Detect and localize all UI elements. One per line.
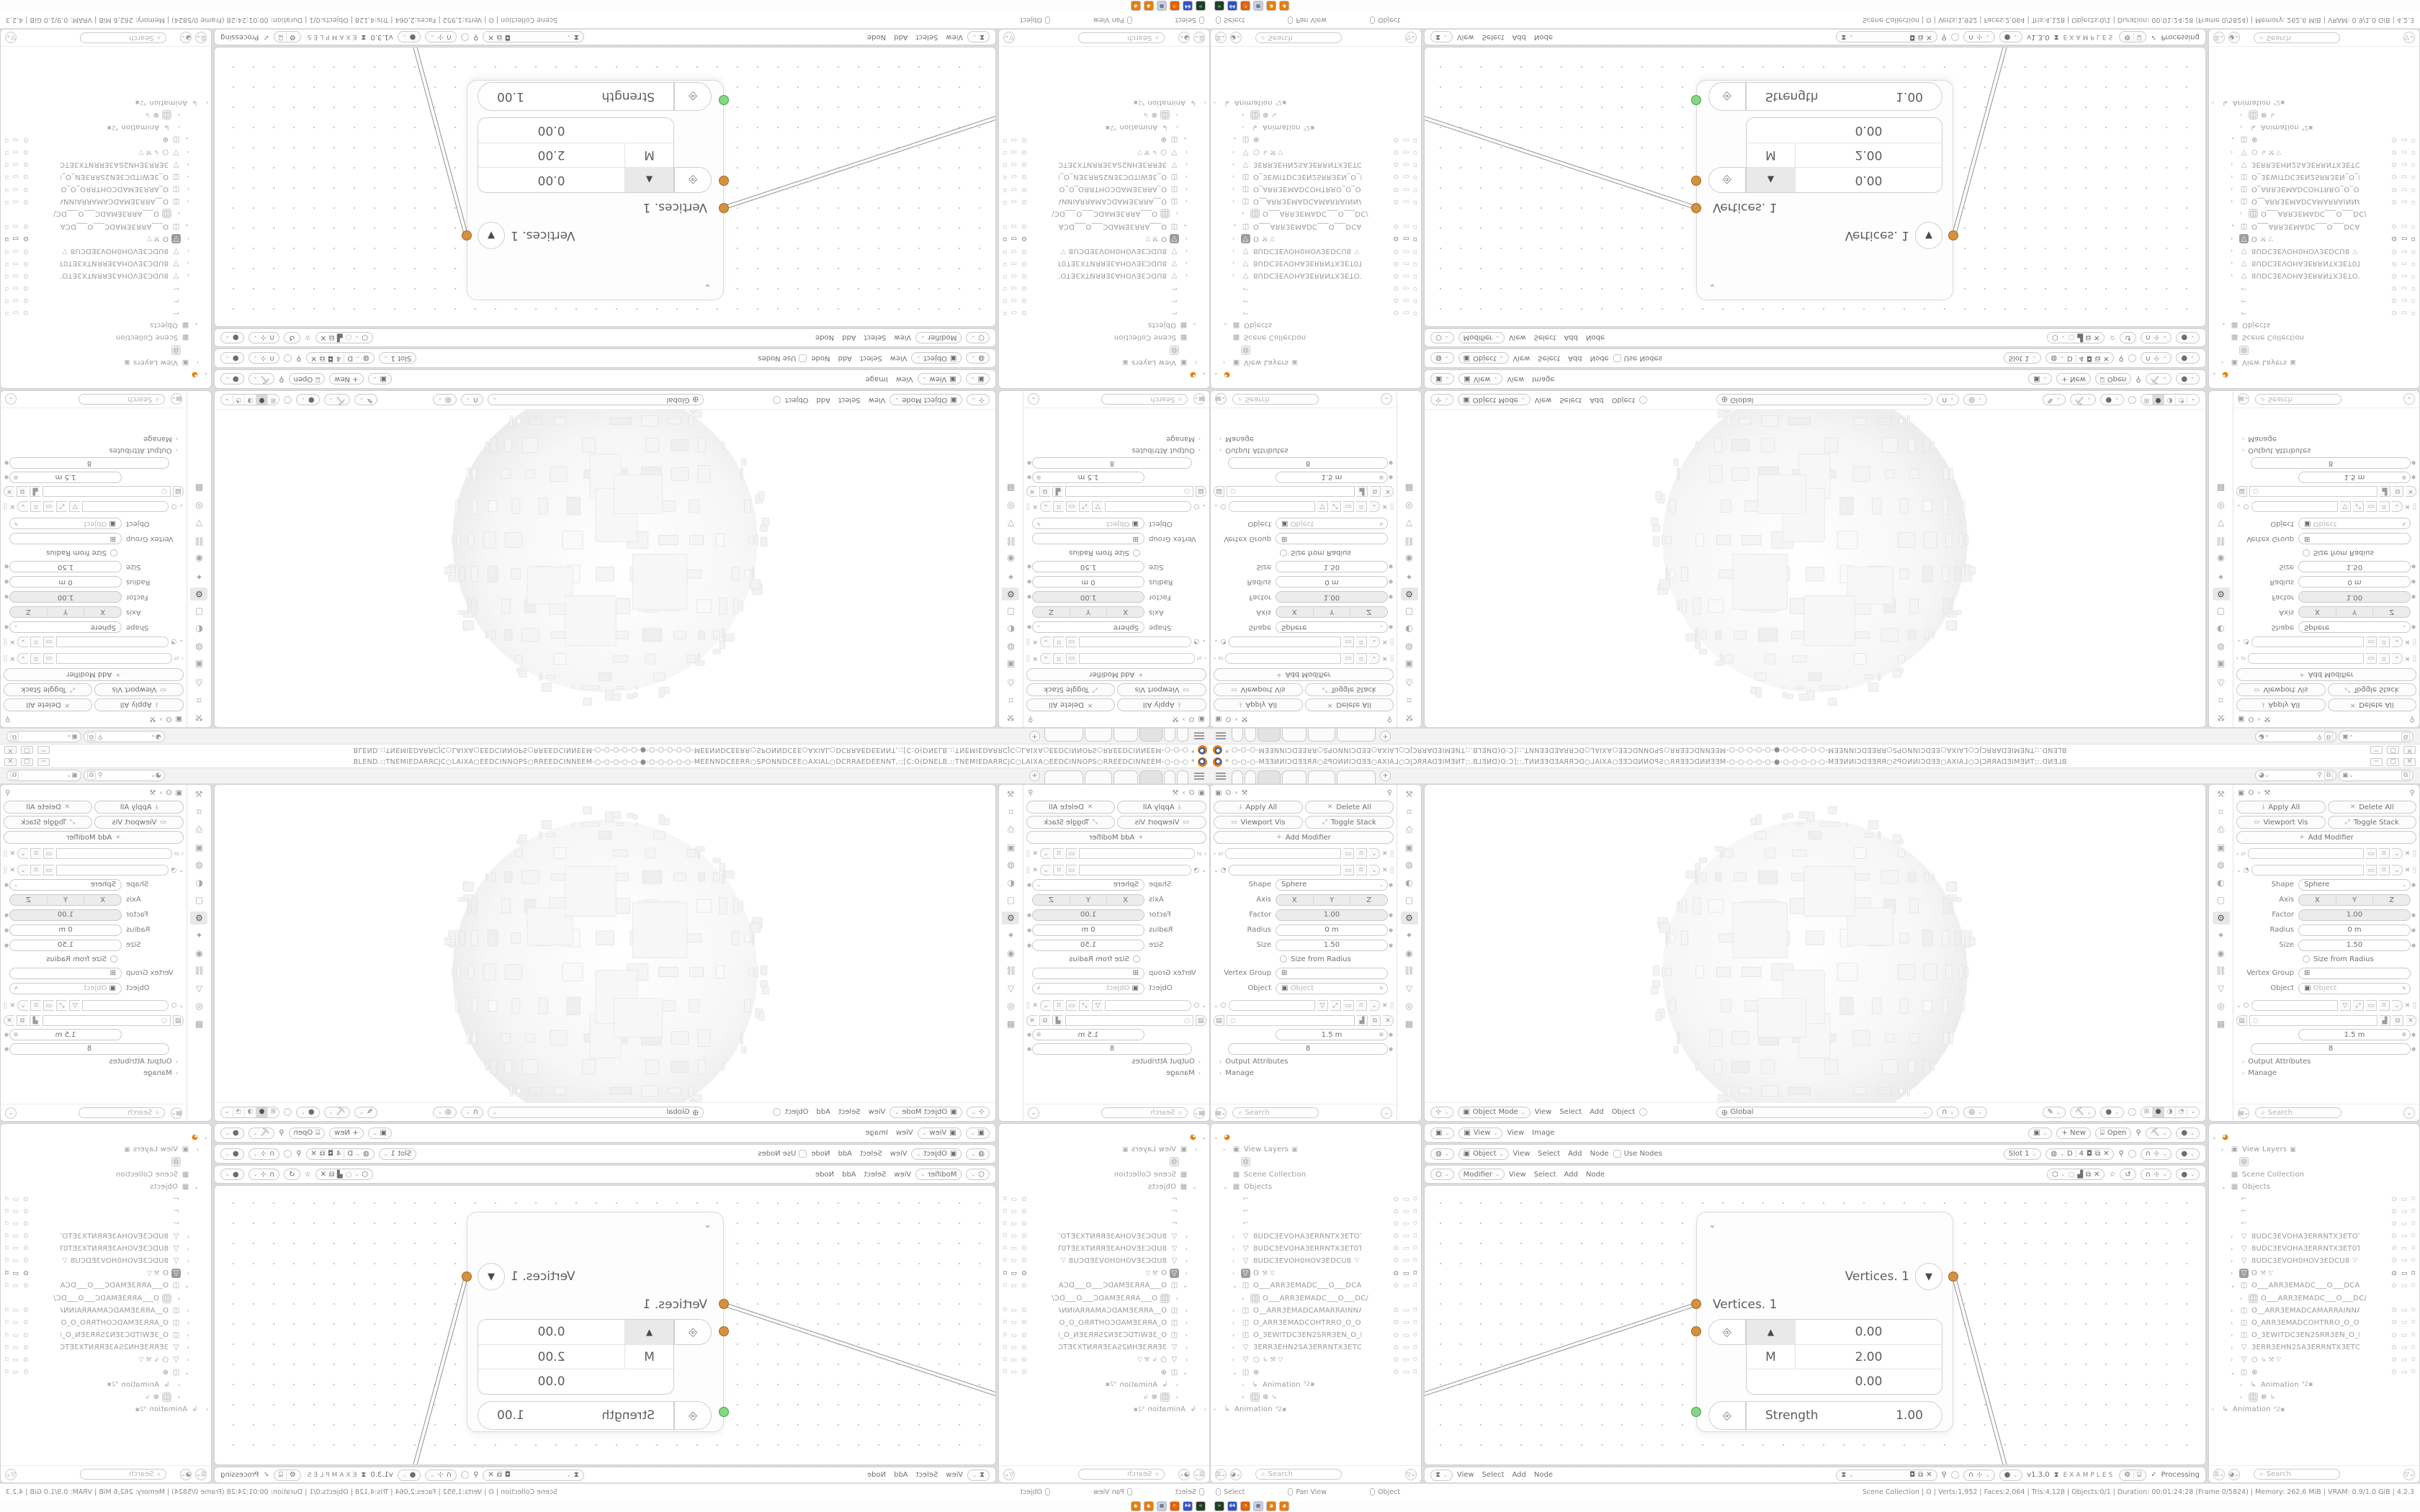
examples-label[interactable]: EXAMPLES [2063,34,2115,41]
outliner-row[interactable]: ⌄◕ [2,1131,208,1143]
expand-arrow-icon[interactable]: ⌄ [1182,1282,1188,1289]
filter-toggle[interactable]: ▽ [1092,501,1103,512]
factor-field[interactable]: 1.00 [1032,592,1144,603]
outliner-row[interactable]: ›▽8UDC3EVOH0HOV3EDCU8▽⊙▭⌑ [1214,1255,1420,1267]
outliner-row[interactable]: ›▽3ERR3EHN2SA3ERRNTX3ETOT3EXT⊙▭⌑ [2212,158,2418,171]
outliner-row[interactable]: ›◫O_3EWITDC3EN2SRR3EN_O_N3ERF⊙▭⌑ [1000,1329,1206,1341]
workspace-tab[interactable] [1177,729,1188,742]
copy-icon[interactable]: ⧉ [2086,1171,2091,1179]
workspace-tab-active[interactable] [1139,770,1162,783]
display-toggle[interactable]: ▭ [1066,865,1077,876]
fake-user-toggle[interactable]: ▟ [2380,486,2390,497]
vertices-node[interactable]: ⌄ Vertices. 1 ▼ Vertices. 1 ⎆ ▲0.00 M2.0… [1696,1212,1953,1432]
tab-scene-icon[interactable]: ◍ [1003,858,1020,871]
drag-grip[interactable]: ⣿ [1389,867,1394,874]
workspace-tab[interactable] [1282,770,1307,783]
count-field[interactable]: 8 [1032,458,1192,469]
display-mode-button[interactable]: ☰⌄ [1215,32,1227,44]
expand-arrow-icon[interactable]: ⌄ [184,1282,189,1289]
render-toggle[interactable]: ⌑ [30,636,41,647]
modifier-header-cast[interactable]: ⌄ ◔ ▭ ⌑ ⌄ ✕ ⣿ [1026,863,1206,877]
browse-icon[interactable]: ▤ [2236,486,2247,497]
axis-segment[interactable]: XYZ [9,894,122,906]
menu-select[interactable]: Select [860,1150,882,1158]
modifier-name-field[interactable] [2251,501,2338,512]
menu-add[interactable]: Add [894,33,907,41]
browse-icon[interactable]: ▤ [1196,1015,1206,1026]
visibility-toggles[interactable]: ⊙▭⌑ [1000,1307,1027,1314]
menu-node[interactable]: Node [1586,334,1605,342]
expand-arrow-icon[interactable]: › [1182,248,1188,254]
editor-type-button[interactable]: ⧗⌄ [967,1470,990,1481]
tab-constraint-icon[interactable]: ⛓ [191,964,208,977]
tab-viewlayer-icon[interactable]: ▣ [2213,841,2230,854]
examples-label[interactable]: EXAMPLES [305,1472,357,1479]
expand-arrow-icon[interactable]: › [1214,1406,1219,1413]
outliner-row[interactable]: ›▽O⚒ ▽⊙▭⌑ [2,233,208,245]
input-plug-button[interactable]: ⎆ [1708,1319,1746,1345]
animate-dot[interactable]: ● [1026,912,1032,918]
filter-toggle[interactable]: ▽ [69,501,80,512]
editor-type-button[interactable]: ◍⌄ [966,353,990,364]
drag-grip[interactable]: ⣿ [1026,655,1031,662]
expand-triangle-icon[interactable]: ▲ [1747,1320,1796,1344]
menu-add[interactable]: Add [1564,334,1578,342]
overlays-dropdown[interactable]: ⛏⌄ [324,395,351,406]
outliner-row[interactable]: ›◫⊕↳ [1000,109,1206,121]
menu-object[interactable]: Object [1612,396,1636,404]
node-group-selector[interactable]: ▤ ○ ▟ ⧉ ✕ [1214,485,1394,498]
viewport-3d[interactable]: ⊹⌄ ▣Object Mode⌄ View Select Add Object … [1424,784,2206,1122]
tab-material-icon[interactable]: ◎ [1401,999,1418,1012]
workspace-tab[interactable] [1085,729,1112,742]
outliner-row[interactable]: ›◫O_3EWITDC3EN2SRR3EN_O_N3ERF⊙▭⌑ [2,1329,208,1341]
outliner-row[interactable]: ›▽3ERR3EHN2SA3ERRNTX3ETOT3EXT⊙▭⌑ [1214,158,1420,171]
overlay-dropdown[interactable]: ●⌄ [220,353,244,364]
outliner-row[interactable]: ›▽3ERR3EHN2SA3ERRNTX3ETOT3EXT⊙▭⌑ [2,1341,208,1354]
shading-material-icon[interactable]: ◑ [244,395,256,405]
visibility-toggles[interactable]: ⊙▭⌑ [2391,284,2418,292]
close-icon[interactable]: ✕ [311,354,317,362]
menu-add[interactable]: Add [1512,33,1526,41]
tab-particles-icon[interactable]: ✦ [1401,929,1418,942]
vector-x-field[interactable]: 0.00 [1796,168,1942,192]
render-toggle[interactable]: ⌑ [30,1000,41,1011]
visibility-toggles[interactable]: ⊙▭⌑ [2,1208,29,1215]
filter-button[interactable]: ▽⌄ [1405,32,1417,44]
tab-texture-icon[interactable]: ▩ [1003,482,1020,495]
expand-arrow-icon[interactable]: ⌄ [1191,1184,1197,1190]
terminal-icon[interactable]: > [1214,1501,1224,1511]
delete-all-button[interactable]: ✕Delete All [1305,801,1394,814]
vector-y-field[interactable]: 2.00 [478,1345,624,1369]
expand-arrow-icon[interactable]: › [2231,1332,2236,1338]
slot-select[interactable]: Slot 1⌄ [2004,1148,2042,1160]
transform-orientation-select[interactable]: 🜨Global⌄ [488,395,704,406]
editor-type-button[interactable]: ▣⌄ [966,1128,990,1139]
floppy64-icon[interactable]: 64 [1183,1,1193,12]
display-toggle[interactable]: ▭ [1343,501,1354,512]
overlay-dropdown[interactable]: ●⌄ [2176,1128,2200,1139]
outliner-row[interactable]: ⌐⊙▭⌑ [2212,307,2418,319]
modifier-header-cast[interactable]: ⌄ ◔ ▭ ⌑ ⌄ ✕ ⣿ [1214,863,1394,877]
outliner-row[interactable]: ›◫O__ARR3EMADCAMARRAINNAP__O⊙▭⌑ [2212,1305,2418,1317]
visibility-toggles[interactable]: ⊙▭⌑ [2391,1208,2418,1215]
outliner-row[interactable]: ›▽O⚒ ▽⊙▭⌑ [2212,233,2418,245]
outliner-row[interactable]: ▦Scene Collection [2212,331,2418,343]
open-image-button[interactable]: ⌸Open [289,374,326,385]
expand-arrow-icon[interactable]: › [184,149,189,156]
menu-view[interactable]: View [1507,375,1524,383]
strength-value[interactable]: 1.00 [1896,1408,1923,1423]
menu-image[interactable]: Image [1532,1129,1554,1137]
tab-data-icon[interactable]: ▽ [2213,982,2230,995]
close-button[interactable]: ✕ [2403,758,2416,766]
expand-arrow-icon[interactable]: › [1232,1270,1238,1277]
outliner-row[interactable]: ›▽8UDC3EVOH0HOV3EDCU8▽⊙▭⌑ [2,245,208,257]
unlink-icon[interactable]: ✕ [1026,1015,1037,1026]
outliner-row[interactable]: ›↳Animation⁴2▪ [2212,1403,2418,1416]
slot-select[interactable]: Slot 1⌄ [379,1148,417,1160]
visibility-toggles[interactable]: ⊙▭⌑ [1393,1319,1420,1326]
close-icon[interactable]: ✕ [1382,850,1388,858]
overlay-dropdown[interactable]: ●⌄ [220,1169,244,1180]
toggle-stack-button[interactable]: ⤢Toggle Stack [1026,683,1116,696]
tab-object-icon[interactable]: ▢ [1003,894,1020,906]
render-toggle[interactable]: ⌑ [1053,501,1064,512]
vertex-group-field[interactable]: ⊞ [2298,968,2411,979]
dropdown-toggle[interactable]: ⌄ [1369,653,1380,664]
outliner-row[interactable]: ›▣View Layers▣ [2,356,208,369]
copy-icon[interactable]: ⧉ [17,1015,27,1026]
maximize-button[interactable]: ▢ [21,758,33,766]
vertex-group-field[interactable]: ⊞ [1032,968,1144,979]
add-workspace-button[interactable]: + [1029,770,1040,781]
outliner-row[interactable]: ⌄◫O___ARR3EMADC___O___DCAM3E⊙▭⌑ [2212,1279,2418,1292]
options-button[interactable]: ⌄ [2403,1107,2415,1119]
dropdown-toggle[interactable]: ⌄ [17,1000,28,1011]
animate-dot[interactable]: ● [2411,927,2416,933]
tab-physics-icon[interactable]: ◉ [2213,947,2230,960]
workspace-tab[interactable] [1282,729,1307,742]
outliner-row[interactable]: ⌐⊙▭⌑ [2212,1218,2418,1230]
expand-arrow-icon[interactable]: ⌄ [2212,372,2218,378]
expand-arrow-icon[interactable]: › [184,161,189,168]
expand-triangle-icon[interactable]: ▲ [624,168,673,192]
apply-all-button[interactable]: ⤓Apply All [1118,801,1207,814]
expand-arrow-icon[interactable]: › [184,174,189,180]
render-toggle[interactable]: ⌑ [2379,636,2390,647]
expand-arrow-icon[interactable]: › [2231,1233,2236,1240]
image-view-select[interactable]: ▣View⌄ [1458,374,1502,385]
expand-arrow-icon[interactable]: › [2231,248,2236,254]
close-icon[interactable]: ✕ [321,334,326,342]
render-toggle[interactable]: ⌑ [1356,653,1367,664]
overlay-circle-icon[interactable] [461,1471,469,1479]
image-view-select[interactable]: ▣View⌄ [918,1128,962,1139]
input-plug-button[interactable]: ⎆ [674,1319,712,1345]
fake-user-toggle[interactable]: ▟ [1357,1015,1368,1026]
blender-icon[interactable]: ◕ [1279,1,1289,12]
object-field[interactable]: ▣ Object✎ [1276,983,1388,994]
expand-arrow-icon[interactable]: › [184,186,189,192]
options-button[interactable]: ⌄ [1381,394,1392,405]
object-field[interactable]: ▣ Object✎ [2298,983,2411,994]
close-icon[interactable]: ✕ [2405,1002,2411,1009]
visibility-toggles[interactable]: ⊙▭⌑ [2391,136,2418,143]
outliner-row[interactable]: ›▽○↳ ⚒ ▽⊙▭⌑ [1214,145,1420,158]
render-toggle[interactable]: ⌑ [2379,848,2390,859]
addon-buttons[interactable]: ⚙⌸ [2119,1470,2146,1481]
visibility-toggles[interactable]: ⊙▭⌑ [2,309,29,316]
edit-toggle[interactable]: ⤢ [1330,501,1341,512]
outliner-row[interactable]: ◍ [1214,1156,1420,1168]
viewlayer-selector[interactable]: ▣⌄⧉ [2339,770,2414,781]
workspace-tab[interactable] [1044,729,1083,742]
expand-arrow-icon[interactable]: › [184,1308,189,1314]
fake-user-toggle[interactable]: ▟ [1052,1015,1063,1026]
animate-dot[interactable]: ● [1026,474,1032,480]
shading-wireframe-icon[interactable]: ⊞ [2141,1107,2153,1117]
expand-arrow-icon[interactable]: › [2240,1382,2246,1388]
snap-toggle[interactable]: ∩⌄ [461,1107,483,1118]
visibility-toggles[interactable]: ⊙▭⌑ [2,1245,29,1252]
copy-icon[interactable]: ⧉ [329,1171,334,1179]
options-button[interactable]: ⌄ [1381,1107,1392,1119]
copy-icon[interactable]: ⧉ [2095,354,2100,362]
outliner-row[interactable]: ›◫⊕↳ [1000,1391,1206,1403]
outliner-row[interactable]: ◍ [1000,1156,1206,1168]
visibility-toggles[interactable]: ⊙▭⌑ [2,248,29,255]
expand-arrow-icon[interactable]: › [1232,1344,1238,1351]
apply-all-button[interactable]: ⤓Apply All [1214,698,1303,711]
gizmo-dropdown[interactable]: ⛏⌄ [248,1128,275,1139]
expand-arrow-icon[interactable]: › [1232,1356,1238,1363]
visibility-toggles[interactable]: ⊙▭⌑ [1393,1332,1420,1339]
display-toggle[interactable]: ▭ [43,636,54,647]
display-mode-button[interactable]: ☰⌄ [1215,1469,1227,1480]
modifier-name-field[interactable] [1079,865,1191,876]
menu-select[interactable]: Select [1534,334,1556,342]
overlay-dropdown[interactable]: ●⌄ [2176,1148,2200,1160]
visibility-toggles[interactable]: ⊙▭⌑ [2391,173,2418,180]
shading-rendered-icon[interactable]: ◔ [233,395,244,405]
geometry-node-editor[interactable]: ⌄ Vertices. 1 ▼ Vertices. 1 ⎆ ▲0.00 M2.0… [1424,47,2206,327]
animate-dot[interactable]: ● [1388,595,1394,600]
visibility-toggles[interactable]: ⊙▭⌑ [1000,1356,1027,1364]
expand-arrow-icon[interactable]: › [1182,186,1188,192]
close-icon[interactable]: ✕ [1382,639,1388,646]
expand-arrow-icon[interactable]: ⌄ [2231,136,2236,143]
copy-icon[interactable]: ⧉ [87,732,96,741]
render-toggle[interactable]: ⌑ [2379,865,2390,876]
edit-toggle[interactable]: ⤢ [56,1000,67,1011]
output-attributes-section[interactable]: ›Output Attributes [2236,445,2416,456]
firefox-icon[interactable]: ◔ [1170,1501,1180,1511]
visibility-toggles[interactable]: ⊙▭⌑ [2391,222,2418,230]
input-socket-vector[interactable] [1691,1326,1701,1336]
close-icon[interactable]: ✕ [1382,503,1388,510]
filter-id-button[interactable]: ◕⌄ [180,32,192,44]
animate-dot[interactable]: ● [4,927,9,933]
add-workspace-button[interactable]: + [1029,731,1040,742]
visibility-toggles[interactable]: ⊙▭⌑ [2391,272,2418,279]
shader-type-select[interactable]: ▣Object⌄ [911,1148,962,1160]
display-mode-button[interactable]: ☰⌄ [1193,1469,1205,1480]
tab-output-icon[interactable]: ⎙ [1003,823,1020,836]
outliner-row[interactable]: ›◫O___ARR3EMADC___O___DC/ [2,1292,208,1304]
modifier-header-cast[interactable]: ⌄ ◔ ▭ ⌑ ⌄ ✕ ⣿ [4,863,184,877]
drag-grip[interactable]: ⣿ [1389,639,1394,646]
add-modifier-button[interactable]: +Add Modifier [4,668,184,681]
pin-icon[interactable]: ⚲ [1387,716,1392,724]
modifier-name-field[interactable] [1225,653,1341,664]
animate-dot[interactable]: ● [2411,1046,2416,1052]
tab-particles-icon[interactable]: ✦ [1401,570,1418,583]
add-modifier-button[interactable]: +Add Modifier [4,831,184,844]
expand-arrow-icon[interactable]: › [2231,272,2236,279]
menu-view[interactable]: View [896,375,913,383]
expand-arrow-icon[interactable]: › [1182,1356,1188,1363]
scale-field[interactable]: 1.5 m⊞ [2298,472,2411,483]
outliner-row[interactable]: ›▽○↳ ⚒ ▽⊙▭⌑ [1000,1354,1206,1366]
snap-group[interactable]: ∩⊹⌄ [2141,1169,2172,1180]
outliner-row[interactable]: ⌄◫⊕⊙▭⌑ [1000,133,1206,145]
expand-arrow-icon[interactable]: › [1232,161,1238,168]
overlay-dropdown[interactable]: ●⌄ [220,374,244,385]
outliner-row[interactable]: ›◫O_ARR3EMADCOHTRRO_O_ORRTH⊙▭⌑ [1000,183,1206,195]
shading-wireframe-icon[interactable]: ⊞ [267,395,279,405]
options-button[interactable]: ⌄ [1028,1107,1039,1119]
size-field[interactable]: 1.50 [1276,562,1388,573]
close-icon[interactable]: ✕ [1033,867,1039,874]
drag-grip[interactable]: ⣿ [4,1002,8,1009]
expand-arrow-icon[interactable]: › [1232,1246,1238,1252]
toggle-stack-button[interactable]: ⤢Toggle Stack [1026,816,1116,829]
menu-select[interactable]: Select [1559,396,1582,404]
modifier-name-field[interactable] [1079,653,1195,664]
mode-circle-icon[interactable] [773,396,781,404]
node-group-name-field[interactable]: ○ [1065,486,1193,497]
expand-arrow-icon[interactable]: ⌄ [2221,1184,2227,1190]
menu-image[interactable]: Image [866,1129,888,1137]
tab-viewlayer-icon[interactable]: ▣ [191,659,208,672]
display-toggle[interactable]: ▭ [43,501,54,512]
geometry-node-editor[interactable]: ⌄ Vertices. 1 ▼ Vertices. 1 ⎆ ▲0.00 M2.0… [214,1185,996,1465]
fake-user-toggle[interactable]: ▟ [1052,486,1063,497]
factor-field[interactable]: 1.00 [2298,592,2411,603]
outliner-row[interactable]: ⌐⊙▭⌑ [1000,294,1206,307]
outliner-row[interactable]: ›▣View Layers▣ [1000,1143,1206,1156]
menu-select[interactable]: Select [1482,33,1505,41]
display-mode-button[interactable]: ☰⌄ [1193,32,1205,44]
render-toggle[interactable]: ⌑ [30,848,41,859]
addon-buttons[interactable]: ⚙⌸ [2119,32,2146,43]
apply-all-button[interactable]: ⤓Apply All [1118,698,1207,711]
copy-icon[interactable]: ⧉ [1918,33,1923,41]
shader-type-select[interactable]: ▣Object⌄ [911,353,962,364]
edit-toggle[interactable]: ⤢ [2353,501,2364,512]
shading-rendered-icon[interactable]: ◔ [2176,1107,2187,1117]
tab-viewlayer-icon[interactable]: ▣ [191,841,208,854]
overlay-circle-icon[interactable] [2128,354,2136,362]
pin-icon[interactable]: ⚲ [98,733,103,740]
expand-arrow-icon[interactable]: › [1223,1146,1229,1153]
expand-arrow-icon[interactable]: › [174,124,180,130]
blender-icon[interactable]: ◕ [1144,1,1154,12]
viewlayer-selector[interactable]: ▣⌄⧉ [6,770,81,781]
output-socket[interactable] [462,1272,472,1282]
outliner-row[interactable]: ›↳Animation⁴2▪ [1214,1379,1420,1391]
overlay-circle-icon[interactable] [1951,33,1959,41]
visibility-toggles[interactable]: ⊙▭⌑ [1393,1208,1420,1215]
tab-viewlayer-icon[interactable]: ▣ [1401,841,1418,854]
outliner-row[interactable]: ›◫O__ARR3EMADCAMARRAINNAP__O⊙▭⌑ [2,1305,208,1317]
outliner-row[interactable]: ›◫O_3EWITDC3EN2SRR3EN_O_N3ERF⊙▭⌑ [2212,1329,2418,1341]
menu-add[interactable]: Add [1590,396,1603,404]
expand-arrow-icon[interactable]: › [2231,174,2236,180]
display-toggle[interactable]: ▭ [1066,501,1077,512]
workspace-tab[interactable] [1308,770,1335,783]
pin-icon[interactable]: ⚲ [2410,716,2415,724]
close-icon[interactable]: ✕ [311,1150,317,1158]
visibility-toggles[interactable]: ⊙▭⌑ [1000,309,1027,316]
shield-icon[interactable]: ◘ [328,354,333,362]
xray-dropdown[interactable]: ●⌄ [296,1107,320,1118]
visibility-toggles[interactable]: ⊙▭⌑ [1393,309,1420,316]
shield-icon[interactable]: ◘ [2087,354,2092,362]
tab-scene-icon[interactable]: ◍ [1401,858,1418,871]
modifier-header-collapsed[interactable]: › ▱ ▭ ⌑ ⌄ ✕ ⣿ [4,847,184,860]
expand-arrow-icon[interactable]: ⌄ [1232,1282,1238,1289]
maximize-button[interactable]: ▢ [21,747,33,755]
workspace-tab[interactable] [1044,770,1083,783]
node-group-selector[interactable]: ▤ ○ ▟ ⧉ ✕ [1026,1014,1206,1027]
expand-arrow-icon[interactable]: ⌄ [184,136,189,143]
visibility-toggles[interactable]: ⊙▭⌑ [2,1307,29,1314]
geonodes-type-select[interactable]: Modifier⌄ [915,1169,962,1180]
animate-dot[interactable]: ● [2411,942,2416,948]
output-attributes-section[interactable]: ›Output Attributes [1026,1056,1206,1067]
shape-select[interactable]: Sphere⌄ [2298,622,2411,634]
outliner-row[interactable]: ›▣View Layers▣ [2212,356,2418,369]
input-socket-vertices[interactable] [719,1299,729,1309]
workspace-tab[interactable] [1164,770,1175,783]
workspace-tab[interactable] [1308,729,1335,742]
menu-node[interactable]: Node [811,354,830,362]
render-toggle[interactable]: ⌑ [1356,636,1367,647]
filter-toggle[interactable]: ▽ [2340,501,2351,512]
size-field[interactable]: 1.50 [9,940,122,951]
size-from-radius-radio[interactable] [110,549,117,557]
open-image-button[interactable]: ⌸Open [2095,374,2132,385]
vector-z-field[interactable]: 0.00 [478,1369,624,1394]
dropdown-toggle[interactable]: ⌄ [2392,636,2403,647]
outliner-row[interactable]: ⌐⊙▭⌑ [1214,307,1420,319]
properties-search-input[interactable]: ⌕Search [79,1107,165,1118]
modifier-header-nodes[interactable]: ⌄ ⬡ ▽ ⤢ ▭ ⌑ ⌄ ✕ ⣿ [1214,999,1394,1012]
shading-wireframe-icon[interactable]: ⊞ [267,1107,279,1117]
visibility-toggles[interactable]: ⊙▭⌑ [1000,1245,1027,1252]
use-nodes-checkbox[interactable]: Use Nodes [758,1150,807,1158]
workspace-tab[interactable] [1113,729,1138,742]
editor-type-button[interactable]: ⊹⌄ [967,1107,990,1118]
tab-tool-icon[interactable]: ⚒ [1401,788,1418,801]
expand-arrow-icon[interactable]: › [1232,272,1238,279]
tab-data-icon[interactable]: ▽ [1401,518,1418,531]
animate-dot[interactable]: ● [1388,564,1394,570]
manage-section[interactable]: ›Manage [4,433,184,445]
